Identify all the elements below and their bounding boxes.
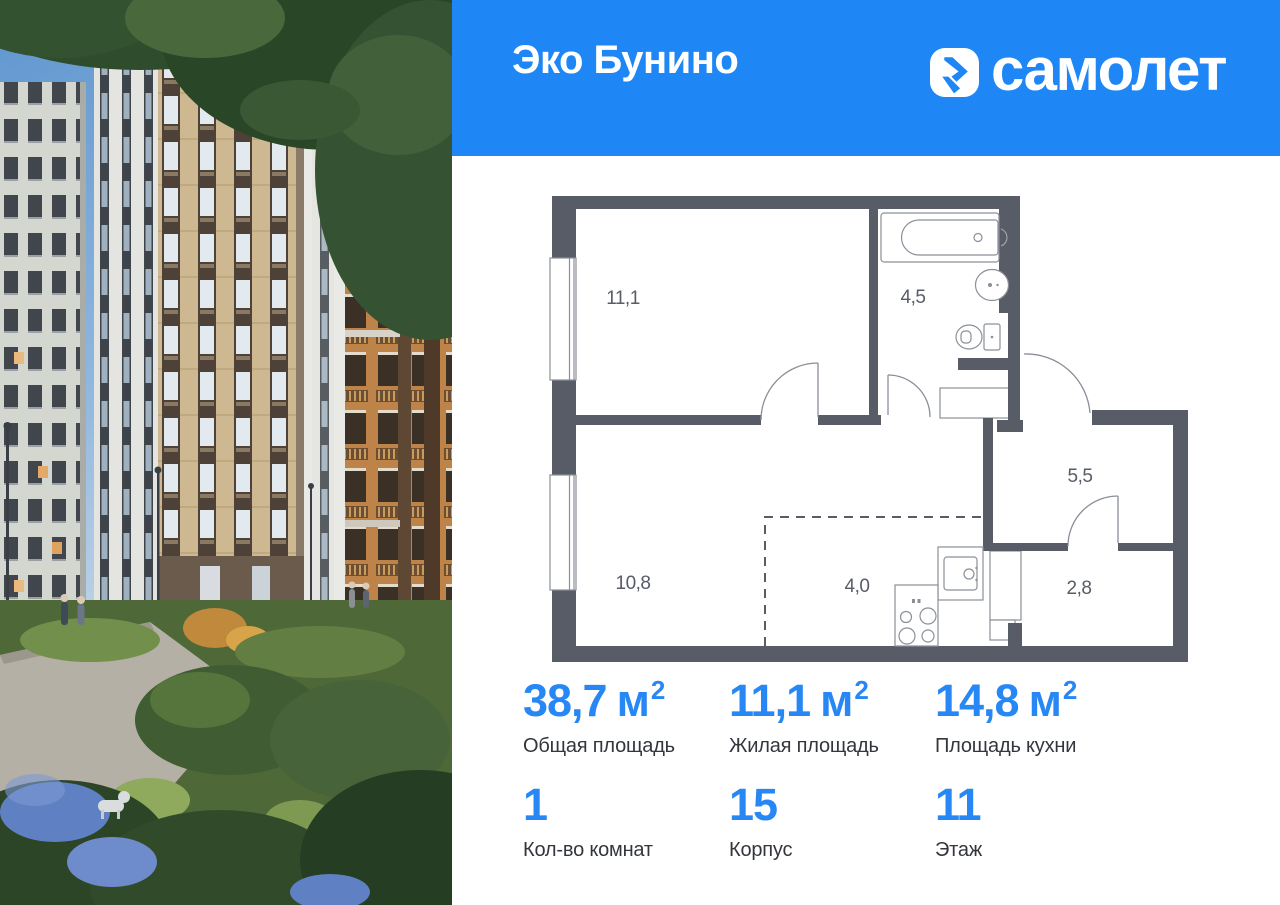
stat-total-area: 38,7м2 Общая площадь bbox=[523, 678, 733, 758]
complex-photo bbox=[0, 0, 452, 905]
stat-rooms-count: 1 Кол-во комнат bbox=[523, 782, 733, 862]
courtyard-garden bbox=[0, 600, 452, 905]
stat-living-area: 11,1м2 Жилая площадь bbox=[729, 678, 939, 758]
header: Эко Бунино самолет bbox=[452, 0, 1280, 156]
blue-flowers bbox=[67, 837, 157, 887]
stat-kitchen-area: 14,8м2 Площадь кухни bbox=[935, 678, 1145, 758]
room-area-label: 2,8 bbox=[1067, 578, 1092, 599]
stat-label: Площадь кухни bbox=[935, 735, 1145, 758]
stat-floor-number: 11 Этаж bbox=[935, 782, 1145, 862]
sink-icon bbox=[976, 270, 1009, 301]
stove-icon bbox=[895, 585, 938, 646]
complex-photo-render bbox=[0, 0, 452, 905]
stat-label: Корпус bbox=[729, 839, 939, 862]
stat-label: Кол-во комнат bbox=[523, 839, 733, 862]
stat-label: Жилая площадь bbox=[729, 735, 939, 758]
room-area-label: 4,0 bbox=[845, 576, 870, 597]
stat-label: Этаж bbox=[935, 839, 1145, 862]
samolet-logo-text: самолет bbox=[991, 40, 1226, 100]
room-area-label: 11,1 bbox=[606, 288, 640, 309]
project-title: Эко Бунино bbox=[512, 40, 738, 80]
room-area-label: 10,8 bbox=[616, 573, 651, 594]
bathtub-icon bbox=[881, 213, 1007, 262]
toilet-icon bbox=[956, 324, 1000, 350]
room-area-label: 5,5 bbox=[1068, 466, 1093, 487]
room-area-label: 4,5 bbox=[901, 287, 926, 308]
listing-card: Эко Бунино самолет bbox=[0, 0, 1280, 905]
kitchen-sink-icon bbox=[938, 547, 983, 600]
samolet-logo: самолет bbox=[930, 44, 1226, 100]
stat-label: Общая площадь bbox=[523, 735, 733, 758]
samolet-logo-icon bbox=[930, 48, 979, 97]
stat-building-number: 15 Корпус bbox=[729, 782, 939, 862]
floor-plan: 11,1 4,5 5,5 10,8 4,0 2,8 bbox=[540, 180, 1200, 670]
